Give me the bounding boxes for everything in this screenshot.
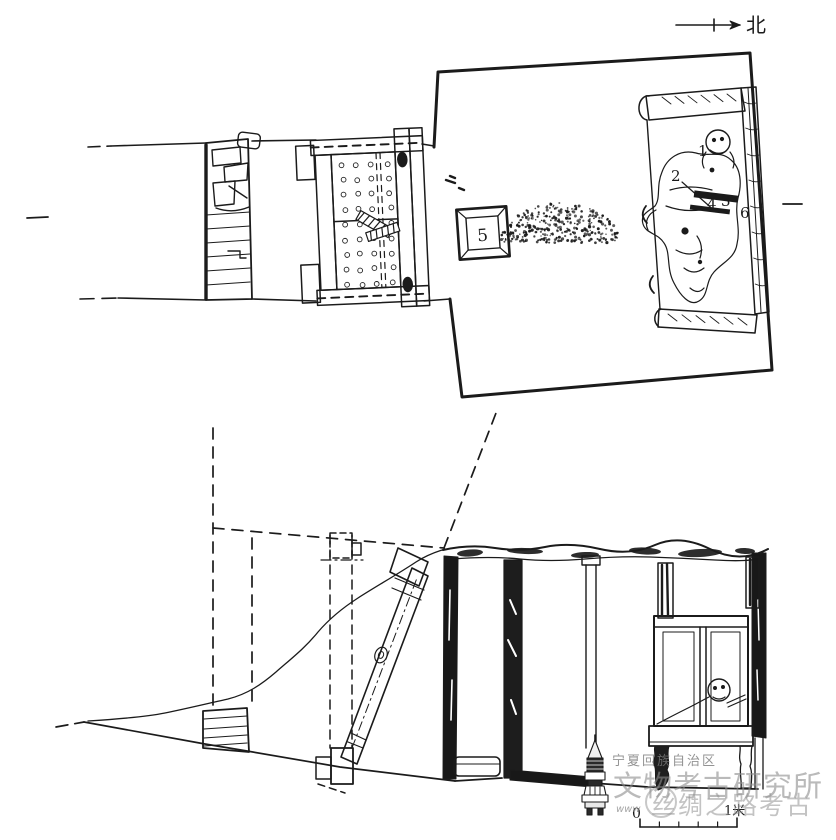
find-label-4: 4 <box>707 195 717 213</box>
door-frame-section <box>316 533 363 793</box>
couch-leg-front-right <box>740 746 752 788</box>
door-pivot-top <box>398 152 408 166</box>
scale-meter-label: 1米 <box>724 804 745 819</box>
sealing-brick-wall <box>206 132 261 300</box>
couch-section <box>649 557 759 790</box>
passage-walls <box>80 143 206 300</box>
tomb-excavation-figure: 北 <box>0 0 836 840</box>
find-label-6: 6 <box>740 204 750 222</box>
debris-marks <box>446 176 464 190</box>
door-flank-north <box>296 145 315 180</box>
couch-leg-lower <box>650 276 654 293</box>
shroud-outline <box>642 152 740 303</box>
sealing-wall-section <box>203 708 249 752</box>
burial-chamber-outline <box>422 53 772 397</box>
ramp-floor-line <box>56 722 455 781</box>
skeleton-plan <box>642 130 740 303</box>
doorway-threshold <box>510 770 592 787</box>
figure-canvas: 北 <box>0 0 836 840</box>
chamber-left-wall <box>443 556 458 779</box>
scale-zero-label: 0 <box>632 806 641 822</box>
thin-wall-post <box>582 556 600 748</box>
scale-bar: 0 1米 <box>632 804 745 827</box>
funerary-couch: 1 2 4 3 6 <box>639 87 769 333</box>
couch-screen-panel-right <box>711 632 740 721</box>
passage-to-door-walls <box>252 140 316 301</box>
skeleton-section <box>657 679 746 724</box>
fallen-door-leaf <box>341 548 428 764</box>
find-label-5: 5 <box>477 226 489 247</box>
find-label-1: 1 <box>698 142 708 160</box>
couch-leg-front-left <box>653 746 669 790</box>
find-label-2: 2 <box>671 167 681 185</box>
fill-slope-line <box>88 549 445 721</box>
north-arrow: 北 <box>676 13 766 37</box>
north-label: 北 <box>746 13 766 37</box>
chamber-ceiling <box>443 540 768 560</box>
tomb-door <box>295 128 430 311</box>
soil-mound <box>500 202 619 244</box>
door-pivot-bottom <box>403 277 413 291</box>
doorway-jamb-post <box>504 560 522 778</box>
couch-canopy-post-left <box>658 563 673 618</box>
section-cut-marker-left <box>27 217 48 218</box>
couch-platform <box>649 726 753 746</box>
chamber-step-block <box>454 757 500 776</box>
plan-view: 5 <box>27 53 802 397</box>
couch-left-edge <box>647 120 660 309</box>
find-label-3: 3 <box>721 192 731 210</box>
offering-box: 5 <box>456 206 509 259</box>
section-view: 0 1米 <box>56 413 768 827</box>
chamber-floor <box>455 778 758 789</box>
door-frame-east-outer <box>409 128 430 306</box>
couch-head-rail <box>646 88 745 120</box>
